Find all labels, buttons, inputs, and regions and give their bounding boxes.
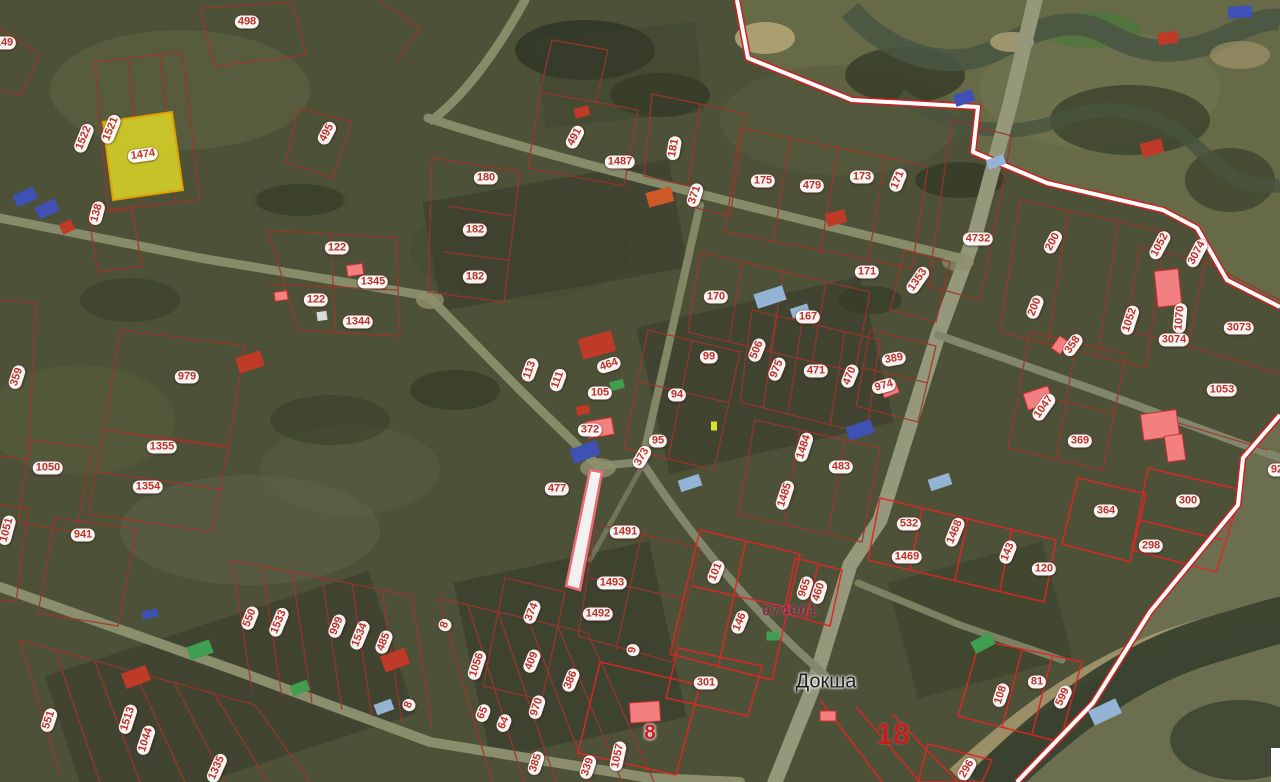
parcel-label[interactable]: 1344 [343, 316, 373, 329]
parcel-label[interactable]: 171 [855, 266, 879, 279]
settlement-name-label: Докша [796, 671, 857, 694]
parcel-label[interactable]: 372 [578, 424, 602, 437]
parcel-label[interactable]: 3073 [1224, 322, 1254, 335]
parcel-label[interactable]: 371 [685, 181, 705, 208]
parcel-label[interactable]: 373 [630, 443, 653, 471]
red-parcel-number-label[interactable]: 8 [644, 721, 656, 745]
parcel-label[interactable]: 94 [668, 389, 686, 402]
parcel-label[interactable]: 301 [694, 677, 718, 690]
parcel-label[interactable]: 1052 [1119, 303, 1141, 336]
parcel-label[interactable]: 181 [665, 135, 682, 161]
parcel-label[interactable]: 1468 [943, 515, 966, 548]
parcel-label[interactable]: 359 [7, 363, 27, 390]
parcel-label[interactable]: 369 [1068, 435, 1092, 448]
parcel-label[interactable]: 1521 [99, 112, 122, 145]
parcel-label[interactable]: 464 [595, 355, 622, 375]
parcel-label[interactable]: 138 [88, 200, 107, 227]
parcel-label[interactable]: 1469 [892, 551, 922, 564]
parcel-label[interactable]: 1493 [597, 577, 627, 590]
parcel-label[interactable]: 1354 [133, 481, 163, 494]
parcel-label[interactable]: 4732 [963, 233, 993, 246]
parcel-label[interactable]: 483 [829, 461, 853, 474]
parcel-label[interactable]: 64 [495, 712, 514, 734]
parcel-label[interactable]: 8 [437, 617, 453, 633]
parcel-label[interactable]: 1492 [583, 608, 613, 621]
cadastral-map-viewport[interactable]: 074001 Докша 18 8 4981491522152114741384… [0, 0, 1280, 782]
parcel-label[interactable]: 175 [751, 175, 775, 188]
parcel-label[interactable]: 1513 [117, 702, 139, 735]
parcel-label[interactable]: 200 [1042, 228, 1065, 256]
parcel-label[interactable]: 386 [560, 666, 581, 693]
parcel-label[interactable]: 143 [997, 538, 1018, 565]
parcel-label[interactable]: 550 [239, 604, 260, 631]
parcel-label[interactable]: 122 [304, 294, 328, 307]
parcel-label[interactable]: 108 [991, 681, 1011, 708]
parcel-label[interactable]: 970 [527, 693, 547, 720]
parcel-label[interactable]: 470 [839, 362, 860, 389]
parcel-label[interactable]: 471 [804, 365, 828, 378]
parcel-label[interactable]: 1057 [608, 740, 627, 773]
parcel-label[interactable]: 3074 [1184, 236, 1210, 269]
parcel-label[interactable]: 9 [626, 643, 641, 657]
parcel-label[interactable]: 101 [705, 558, 726, 585]
parcel-label[interactable]: 113 [520, 357, 540, 384]
parcel-label[interactable]: 111 [548, 367, 568, 393]
parcel-label[interactable]: 532 [897, 518, 921, 531]
parcel-label[interactable]: 491 [564, 123, 587, 151]
parcel-label[interactable]: 1335 [205, 751, 229, 782]
parcel-label[interactable]: 1070 [1172, 302, 1188, 334]
parcel-label[interactable]: 1474 [127, 146, 159, 163]
parcel-label[interactable]: 200 [1024, 293, 1045, 320]
parcel-label[interactable]: 170 [704, 291, 728, 304]
parcel-label[interactable]: 364 [1094, 505, 1118, 518]
parcel-label[interactable]: 477 [545, 483, 569, 496]
parcel-label[interactable]: 182 [463, 224, 487, 237]
parcel-label[interactable]: 120 [1032, 563, 1056, 576]
parcel-label[interactable]: 485 [373, 628, 394, 655]
parcel-label[interactable]: 1534 [348, 618, 371, 651]
parcel-label[interactable]: 65 [474, 702, 493, 724]
parcel-label[interactable]: 495 [316, 119, 339, 147]
parcel-label[interactable]: 173 [850, 171, 874, 184]
parcel-label[interactable]: 1355 [147, 441, 177, 454]
parcel-label[interactable]: 1491 [610, 526, 640, 539]
parcel-label[interactable]: 298 [1139, 540, 1163, 553]
parcel-label[interactable]: 1522 [72, 121, 95, 154]
parcel-label[interactable]: 409 [521, 647, 542, 674]
parcel-label[interactable]: 180 [474, 172, 498, 185]
parcel-label[interactable]: 339 [578, 753, 598, 780]
parcel-label[interactable]: 979 [175, 371, 199, 384]
parcel-label[interactable]: 1052 [1147, 228, 1173, 261]
parcel-label[interactable]: 8 [401, 697, 417, 713]
parcel-label[interactable]: 300 [1176, 495, 1200, 508]
parcel-label[interactable]: 122 [325, 242, 349, 255]
parcel-label[interactable]: 498 [235, 16, 259, 29]
parcel-label[interactable]: 182 [463, 271, 487, 284]
parcel-label[interactable]: 941 [71, 529, 95, 542]
parcel-label[interactable]: 974 [871, 377, 898, 396]
district-number-label: 18 [876, 718, 909, 752]
parcel-label[interactable]: 1053 [1207, 384, 1237, 397]
parcel-label[interactable]: 1353 [904, 264, 932, 296]
parcel-label[interactable]: 1487 [605, 156, 635, 169]
parcel-label[interactable]: 1047 [1030, 391, 1058, 423]
parcel-label[interactable]: 506 [746, 336, 767, 363]
parcel-label[interactable]: 599 [1052, 683, 1074, 711]
labels-layer: 074001 Докша 18 8 4981491522152114741384… [0, 0, 1280, 782]
parcel-label[interactable]: 296 [955, 755, 978, 782]
parcel-label[interactable]: 385 [526, 749, 546, 776]
parcel-label[interactable]: 975 [766, 355, 787, 382]
parcel-label[interactable]: 389 [881, 350, 907, 367]
parcel-label[interactable]: 81 [1028, 676, 1046, 689]
cadastral-quarter-number[interactable]: 074001 [762, 603, 818, 620]
parcel-label[interactable]: 149 [0, 37, 16, 50]
parcel-label[interactable]: 167 [796, 311, 820, 324]
parcel-label[interactable]: 99 [700, 351, 718, 364]
parcel-label[interactable]: 479 [800, 180, 824, 193]
parcel-label[interactable]: 3074 [1159, 334, 1189, 347]
parcel-label[interactable]: 551 [39, 706, 59, 733]
parcel-label[interactable]: 95 [649, 435, 667, 448]
parcel-label[interactable]: 1051 [0, 514, 17, 547]
parcel-label[interactable]: 374 [521, 598, 542, 625]
parcel-label[interactable]: 1056 [466, 648, 488, 681]
parcel-label[interactable]: 999 [326, 612, 347, 639]
parcel-label[interactable]: 105 [588, 387, 612, 400]
parcel-label[interactable]: 1050 [33, 462, 63, 475]
parcel-label[interactable]: 1485 [774, 478, 796, 511]
parcel-label[interactable]: 1044 [135, 723, 157, 756]
parcel-label[interactable]: 1533 [267, 605, 290, 638]
parcel-label[interactable]: 1345 [358, 276, 388, 289]
parcel-label[interactable]: 171 [887, 166, 908, 193]
parcel-label[interactable]: 92 [1268, 464, 1280, 477]
parcel-label[interactable]: 146 [729, 608, 750, 635]
parcel-label[interactable]: 1484 [793, 430, 815, 463]
parcel-label[interactable]: 358 [1061, 331, 1086, 358]
